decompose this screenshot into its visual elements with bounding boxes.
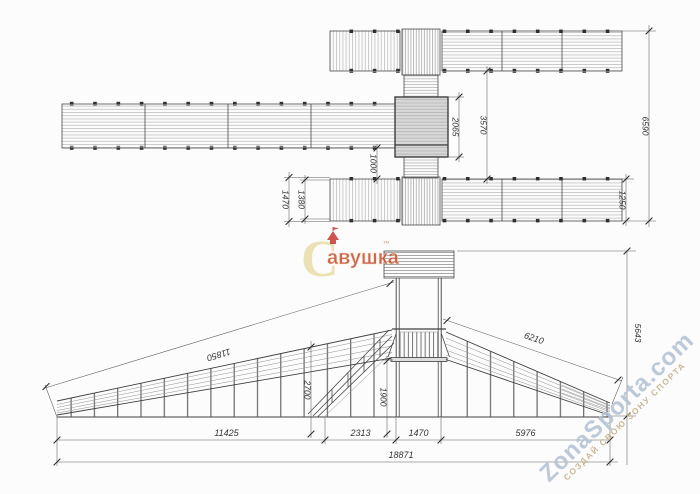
- dim-label-walkway-width: 1250: [618, 191, 628, 210]
- elevation-tower: [384, 251, 454, 417]
- elevation-right-ramp: [446, 332, 610, 417]
- dim-label-right-ramp-slope: 6210: [523, 330, 545, 346]
- dim-label-ramp-width-outer: 1470: [281, 190, 291, 209]
- elevation-view: 11850 6210 2700 1900 5643: [43, 248, 643, 466]
- dim-label-platform-height: 1900: [379, 388, 389, 407]
- plan-lower-walkway: [330, 177, 622, 225]
- dim-label-walkway-gap: 3570: [479, 116, 489, 135]
- dim-label-tower-width: 1470: [408, 428, 428, 438]
- dim-label-left-run: 11425: [214, 428, 239, 438]
- dim-label-rail-height: 2700: [303, 380, 313, 400]
- dim-label-stair-run: 2313: [349, 428, 370, 438]
- logo-text: авушка: [327, 247, 400, 269]
- tower-deck: [391, 358, 447, 362]
- watermark-slogan-text: СОЗДАЙ СВОЮ ЗОНУ СПОРТА: [561, 359, 688, 482]
- dim-label-ramp-width-inner: 1380: [297, 190, 307, 209]
- plan-posts: [62, 102, 395, 106]
- plan-left-walkway: [62, 102, 395, 150]
- dim-label-overall-run: 18871: [388, 450, 413, 460]
- dim-label-overall-height: 5643: [633, 324, 643, 343]
- elevation-left-ramp: [57, 330, 392, 417]
- plan-posts: [62, 146, 395, 150]
- dim-label-right-run: 5976: [515, 428, 535, 438]
- dim-label-left-ramp-slope: 11850: [206, 347, 232, 364]
- logo-trademark: ™: [383, 241, 390, 248]
- tower-balustrade: [400, 332, 439, 358]
- dim-label-walkway-offset: 1000: [369, 154, 379, 173]
- dim-label-overall-width: 6590: [641, 117, 651, 136]
- drawing-canvas: 2065 3570 1000 6590 1250 1470: [0, 0, 700, 494]
- watermark-logo: С авушка ™: [301, 227, 400, 288]
- plan-view: 2065 3570 1000 6590 1250 1470: [62, 25, 656, 227]
- dim-label-platform-depth: 2065: [451, 117, 461, 137]
- plan-central-platform: [395, 97, 448, 157]
- technical-drawing-page: 2065 3570 1000 6590 1250 1470: [0, 0, 700, 494]
- plan-upper-walkway: [330, 29, 622, 75]
